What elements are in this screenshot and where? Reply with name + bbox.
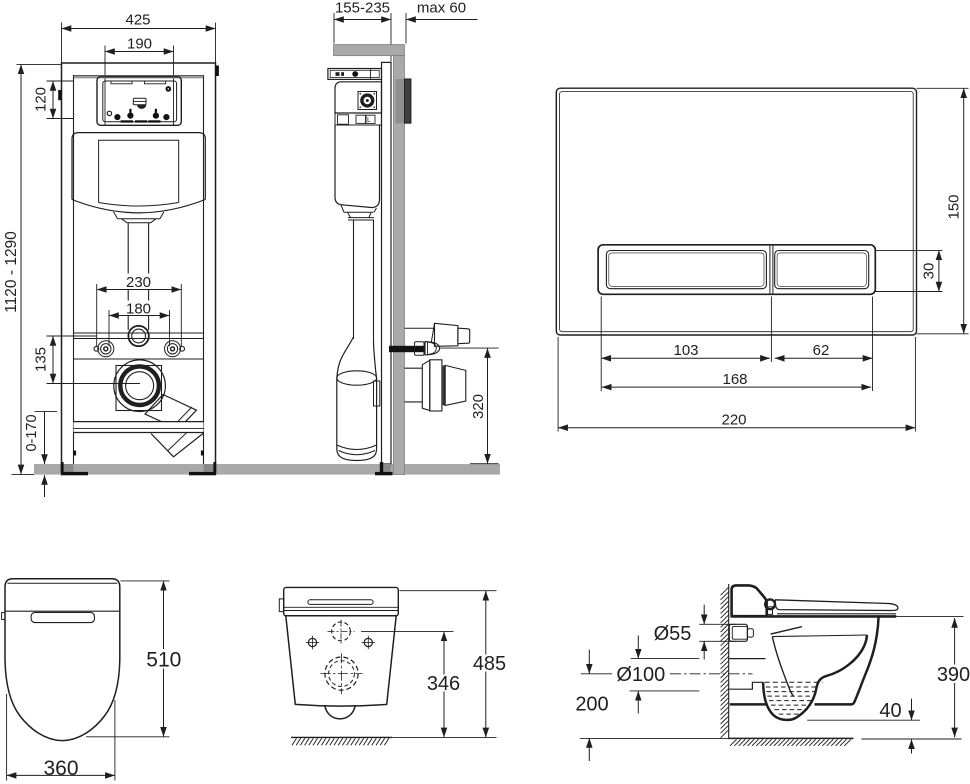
svg-text:425: 425 [125, 12, 150, 29]
svg-text:510: 510 [146, 649, 181, 672]
svg-text:120: 120 [32, 87, 49, 112]
svg-text:62: 62 [813, 342, 830, 359]
svg-text:0-170: 0-170 [24, 414, 40, 451]
svg-text:135: 135 [32, 347, 49, 372]
svg-text:168: 168 [722, 371, 747, 388]
svg-text:230: 230 [126, 274, 151, 291]
svg-text:103: 103 [673, 342, 698, 359]
svg-text:max 60: max 60 [417, 0, 466, 17]
svg-text:1120 - 1290: 1120 - 1290 [3, 231, 20, 313]
svg-text:150: 150 [945, 194, 962, 219]
svg-text:485: 485 [473, 653, 506, 675]
svg-text:190: 190 [127, 35, 152, 52]
svg-text:Ø100: Ø100 [616, 664, 665, 686]
svg-text:155-235: 155-235 [335, 0, 390, 17]
svg-text:390: 390 [937, 664, 970, 686]
svg-text:200: 200 [575, 694, 608, 716]
svg-text:220: 220 [721, 411, 746, 428]
svg-text:180: 180 [126, 300, 151, 317]
svg-text:320: 320 [470, 394, 487, 419]
svg-text:40: 40 [879, 700, 901, 722]
svg-text:30: 30 [921, 263, 938, 280]
svg-text:360: 360 [43, 757, 78, 780]
svg-text:Ø55: Ø55 [654, 623, 692, 645]
svg-text:L: L [367, 117, 371, 124]
svg-text:346: 346 [427, 673, 460, 695]
